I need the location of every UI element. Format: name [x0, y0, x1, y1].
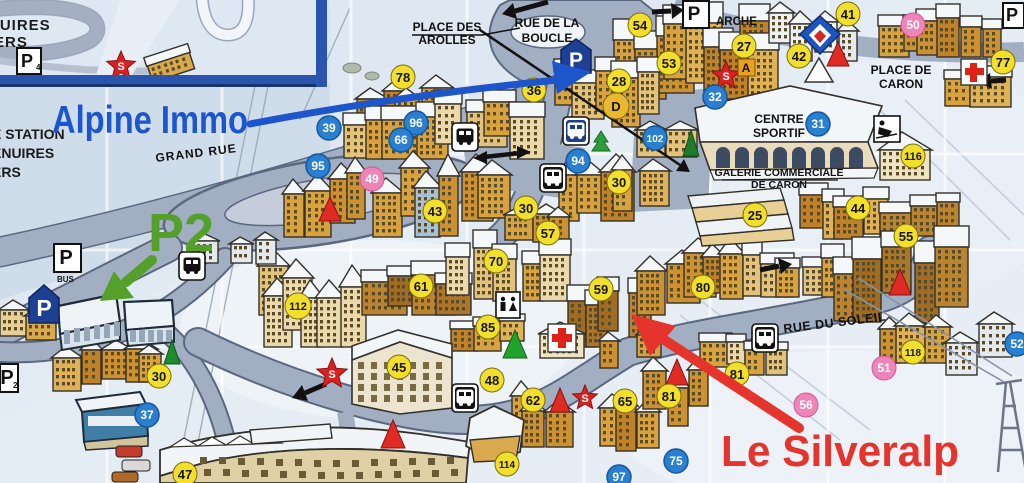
svg-text:S: S: [722, 71, 729, 83]
svg-text:GALERIE COMMERCIALE: GALERIE COMMERCIALE: [715, 167, 844, 179]
svg-text:27: 27: [737, 39, 751, 54]
svg-text:DE CARON: DE CARON: [751, 179, 807, 191]
svg-text:118: 118: [905, 348, 922, 359]
svg-text:P: P: [21, 51, 33, 71]
svg-text:P: P: [0, 367, 13, 389]
svg-text:78: 78: [396, 70, 410, 85]
svg-text:P: P: [688, 4, 701, 25]
svg-text:56: 56: [799, 398, 813, 412]
svg-text:Le Silveralp: Le Silveralp: [721, 427, 959, 476]
svg-text:43: 43: [428, 204, 442, 219]
svg-text:30: 30: [152, 369, 166, 384]
svg-text:114: 114: [499, 460, 516, 471]
svg-text:50: 50: [906, 18, 920, 32]
svg-text:32: 32: [708, 90, 722, 104]
svg-text:30: 30: [612, 175, 626, 190]
svg-text:51: 51: [877, 361, 891, 375]
svg-text:37: 37: [140, 408, 154, 422]
svg-text:D: D: [611, 99, 620, 114]
svg-text:BUS: BUS: [57, 275, 75, 284]
svg-text:CENTRE: CENTRE: [754, 112, 803, 126]
svg-text:25: 25: [748, 208, 762, 223]
svg-text:CARON: CARON: [879, 77, 923, 91]
svg-text:80: 80: [696, 280, 710, 295]
svg-text:49: 49: [365, 172, 379, 186]
svg-text:41: 41: [841, 7, 855, 22]
svg-text:RUE DE LA: RUE DE LA: [515, 16, 580, 30]
svg-text:30: 30: [519, 201, 533, 216]
svg-text:55: 55: [899, 229, 913, 244]
svg-text:BOUCLE: BOUCLE: [522, 31, 573, 45]
svg-text:59: 59: [594, 282, 608, 297]
svg-text:2: 2: [13, 381, 18, 390]
svg-text:Alpine Immo: Alpine Immo: [52, 99, 248, 142]
svg-text:52: 52: [1010, 337, 1024, 351]
svg-text:4: 4: [36, 63, 41, 72]
svg-text:S: S: [328, 369, 335, 381]
svg-text:65: 65: [618, 394, 632, 409]
svg-text:ARCHE: ARCHE: [716, 16, 757, 28]
svg-text:97: 97: [612, 470, 626, 483]
svg-text:31: 31: [811, 117, 825, 131]
svg-text:61: 61: [414, 279, 428, 294]
svg-text:42: 42: [792, 49, 806, 64]
svg-text:28: 28: [612, 74, 626, 89]
svg-text:48: 48: [485, 373, 499, 388]
svg-text:P: P: [59, 247, 72, 269]
svg-text:62: 62: [526, 393, 540, 408]
svg-text:SPORTIF: SPORTIF: [753, 126, 805, 140]
svg-text:ENUIRES: ENUIRES: [0, 145, 54, 161]
svg-text:53: 53: [662, 56, 676, 71]
svg-text:57: 57: [541, 226, 555, 241]
svg-text:77: 77: [996, 55, 1010, 70]
svg-text:ERS: ERS: [0, 164, 21, 180]
svg-text:94: 94: [571, 154, 585, 168]
svg-text:96: 96: [409, 116, 423, 130]
svg-text:85: 85: [481, 320, 495, 335]
svg-text:102: 102: [647, 134, 664, 145]
svg-text:PLACE DE: PLACE DE: [871, 63, 932, 77]
svg-text:95: 95: [311, 159, 325, 173]
svg-text:P: P: [1006, 5, 1018, 25]
svg-text:66: 66: [394, 133, 408, 147]
svg-text:A: A: [742, 61, 751, 75]
svg-text:81: 81: [662, 389, 676, 404]
svg-text:116: 116: [904, 151, 922, 163]
svg-text:70: 70: [489, 254, 503, 269]
svg-text:S: S: [581, 393, 588, 405]
svg-text:112: 112: [289, 301, 307, 313]
svg-text:P2: P2: [148, 203, 214, 263]
svg-text:39: 39: [322, 121, 336, 135]
svg-text:54: 54: [633, 18, 648, 33]
svg-text:P: P: [36, 295, 51, 321]
svg-text:PLACE DES: PLACE DES: [413, 20, 482, 34]
svg-text:NUIRES: NUIRES: [0, 17, 51, 34]
svg-text:75: 75: [669, 454, 683, 468]
svg-text:45: 45: [392, 360, 406, 375]
svg-text:44: 44: [851, 201, 866, 216]
svg-text:S: S: [117, 61, 124, 73]
svg-text:47: 47: [178, 467, 192, 482]
